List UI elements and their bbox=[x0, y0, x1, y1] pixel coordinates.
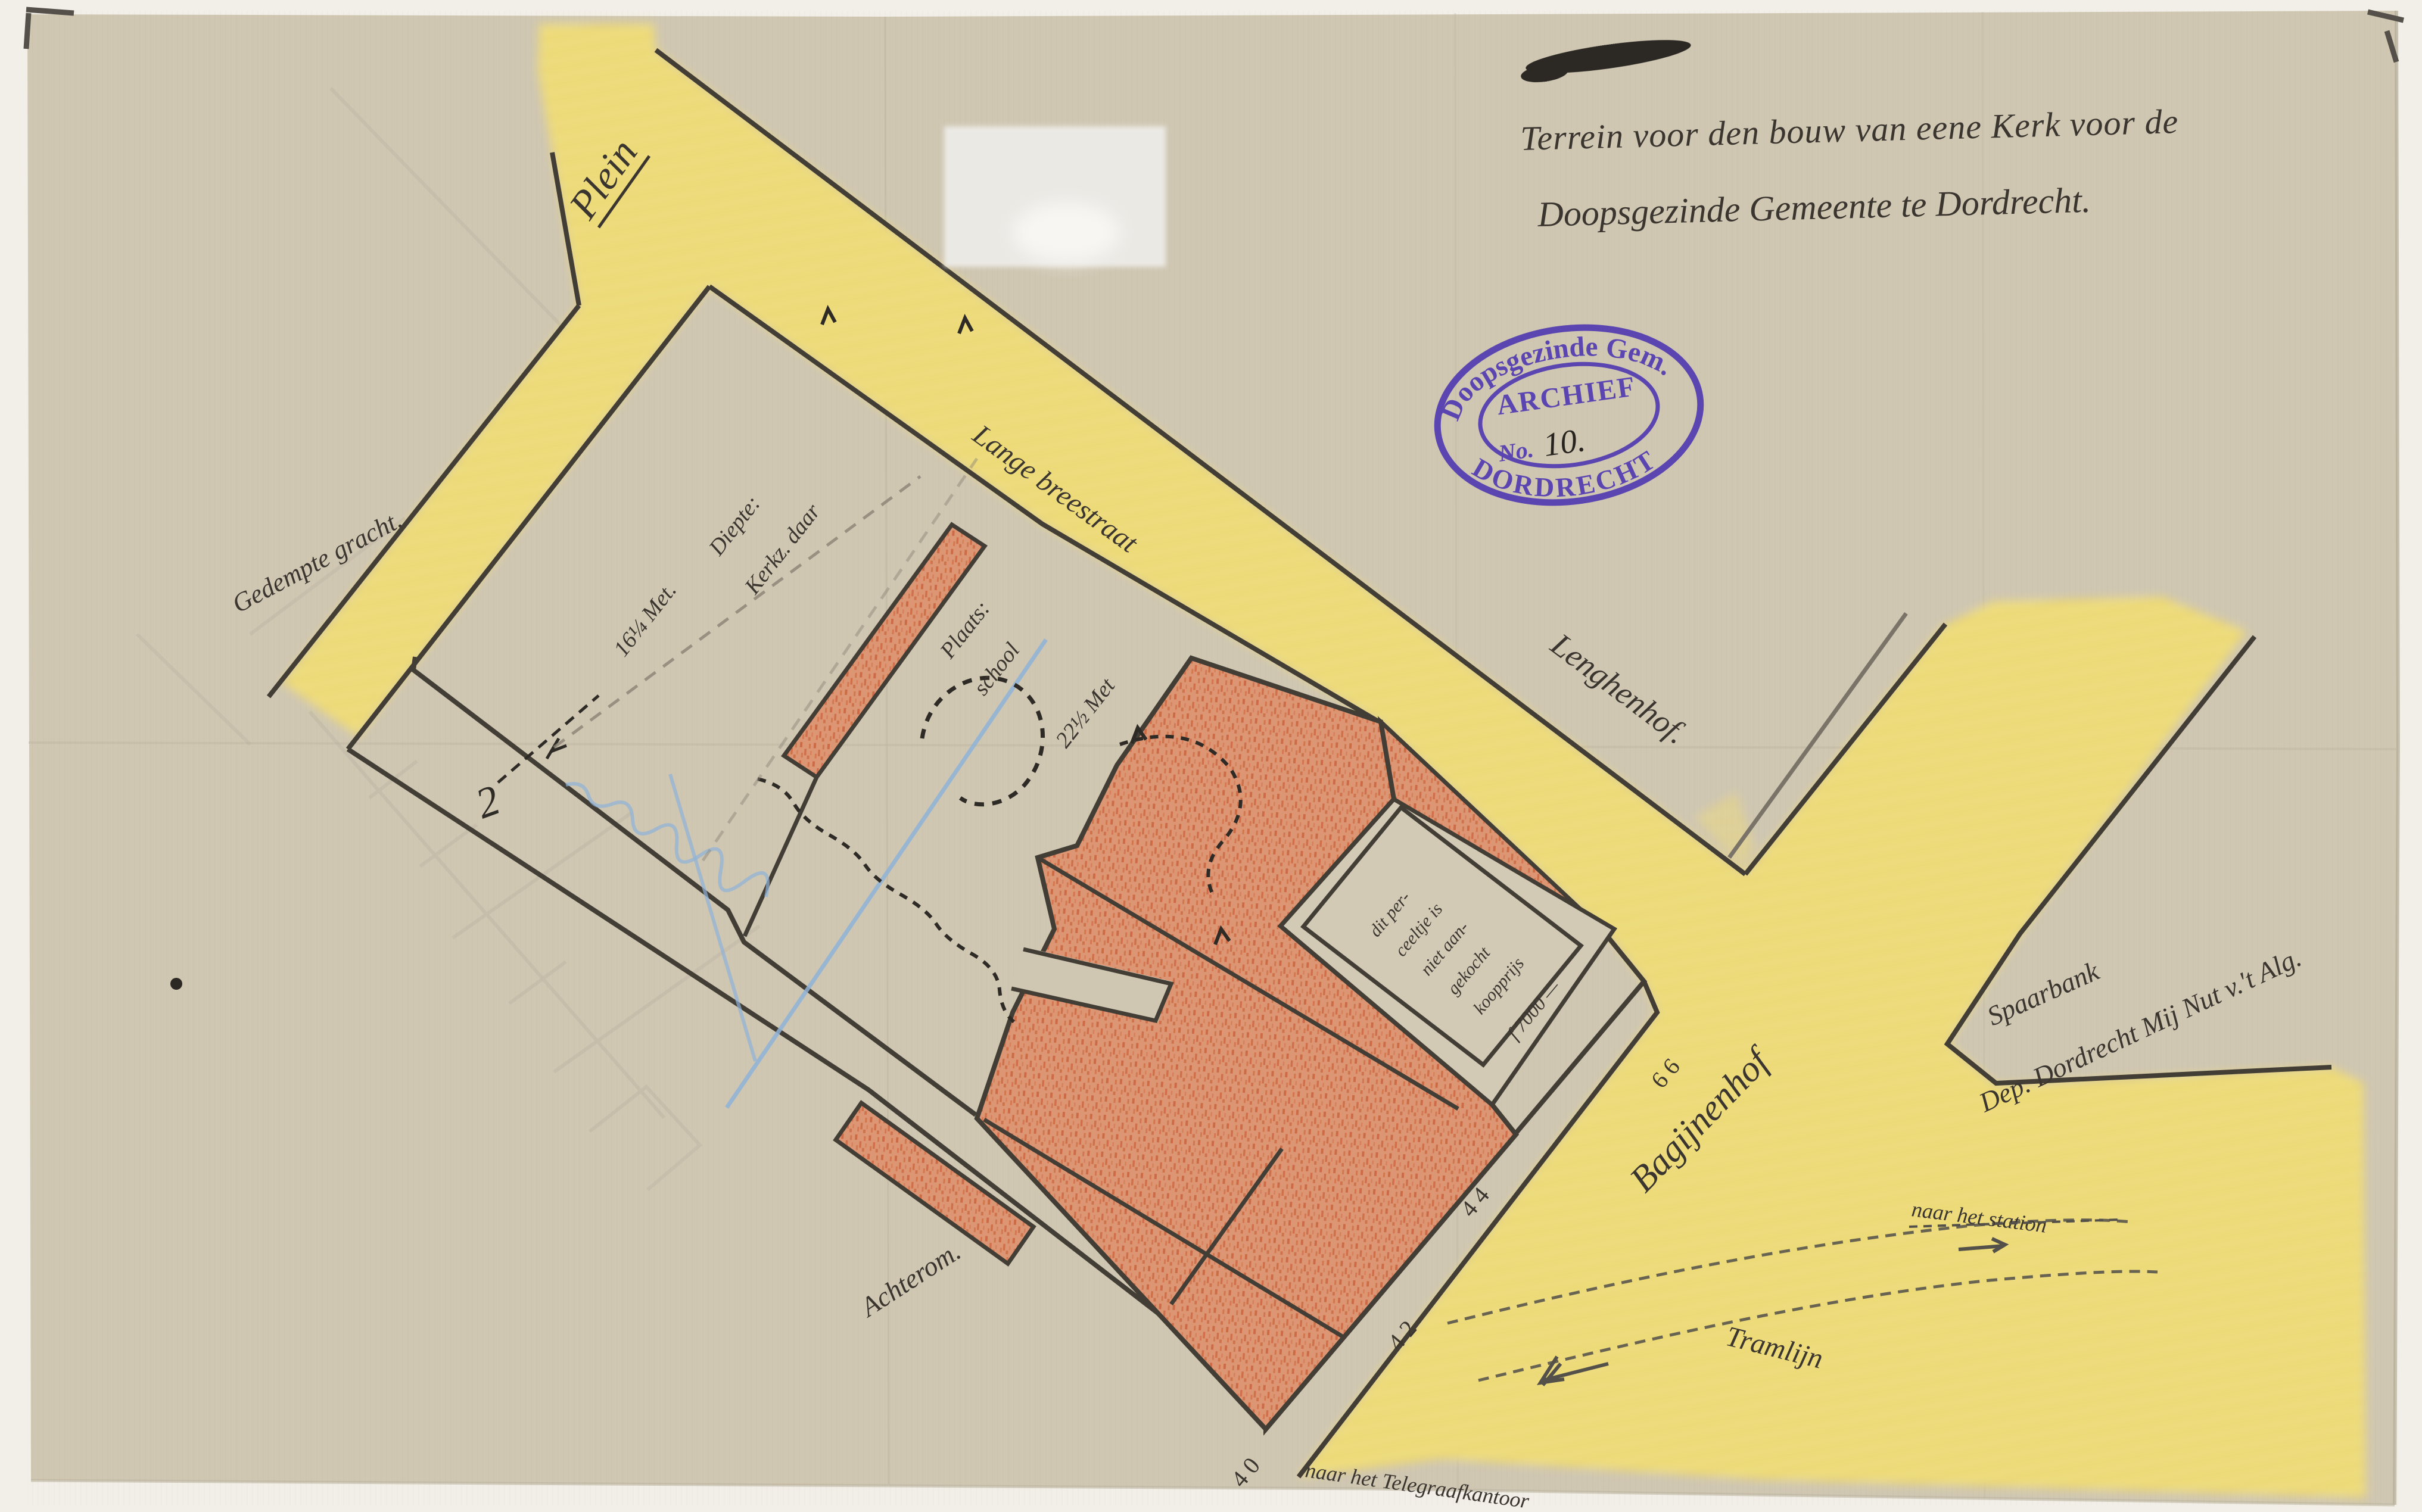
svg-text:No.: No. bbox=[1496, 435, 1536, 467]
svg-text:10.: 10. bbox=[1541, 422, 1587, 464]
